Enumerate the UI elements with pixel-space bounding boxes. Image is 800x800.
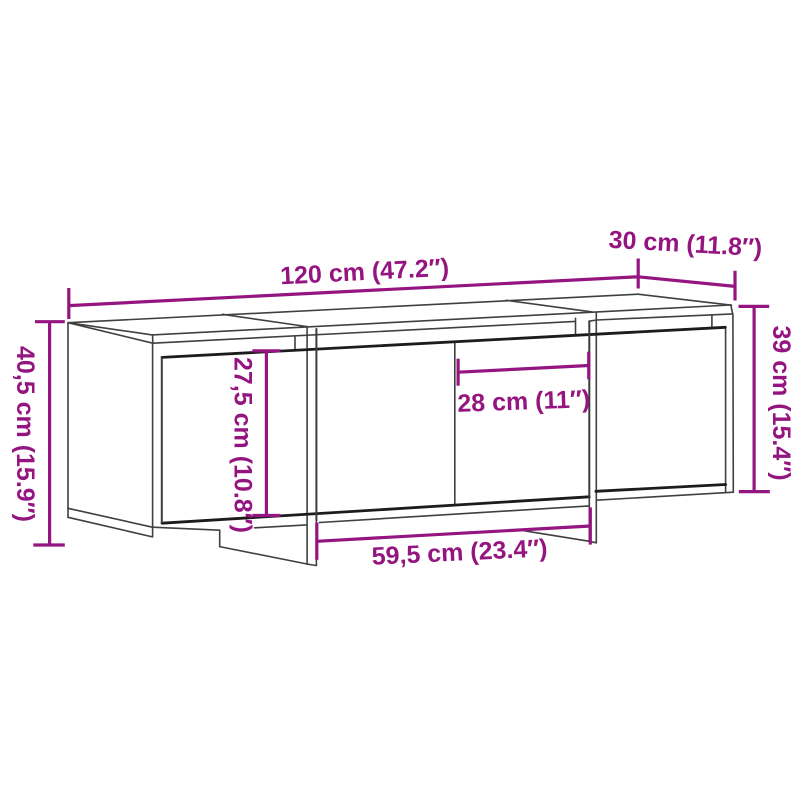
svg-text:39 cm (15.4″): 39 cm (15.4″)	[767, 325, 795, 480]
svg-text:28 cm (11″): 28 cm (11″)	[457, 385, 591, 418]
svg-text:40,5 cm (15.9″): 40,5 cm (15.9″)	[11, 346, 39, 522]
svg-text:27,5 cm (10.8″): 27,5 cm (10.8″)	[229, 357, 257, 533]
